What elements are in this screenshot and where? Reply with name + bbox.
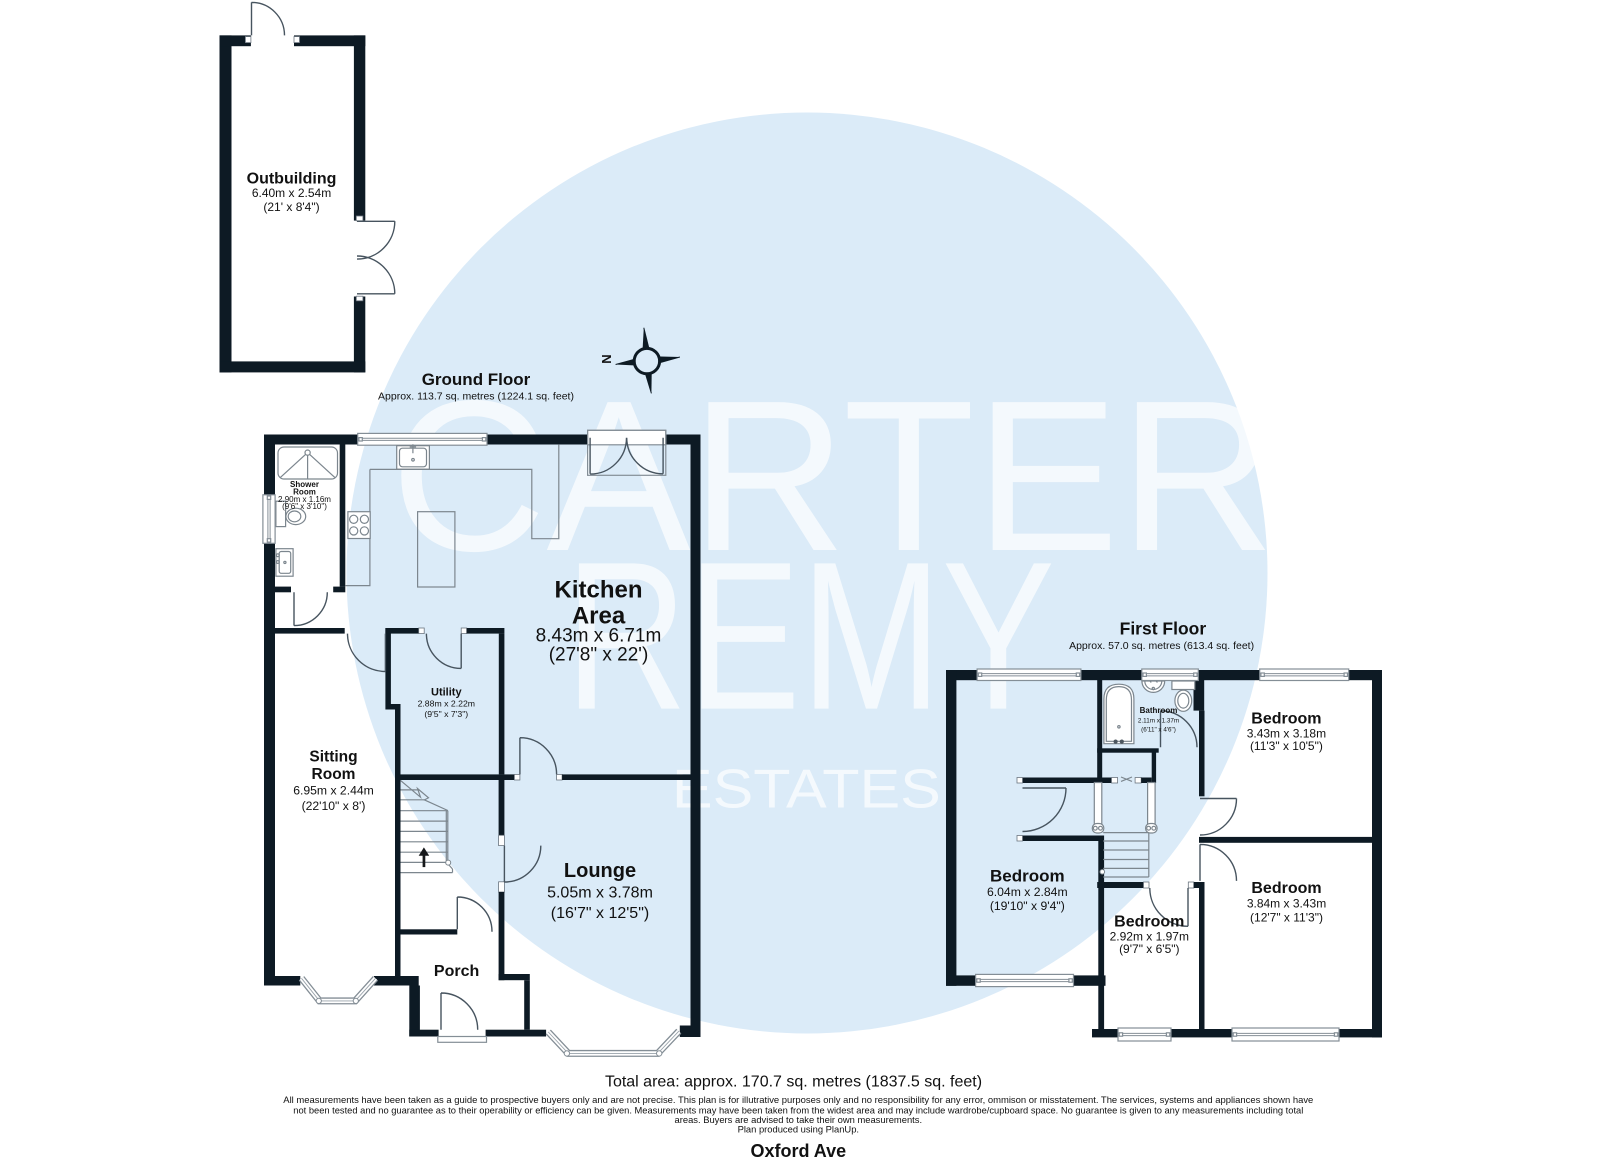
- svg-text:Lounge: Lounge: [564, 860, 636, 882]
- svg-text:Outbuilding: Outbuilding: [247, 171, 337, 188]
- svg-text:(21' x 8'4"): (21' x 8'4"): [263, 200, 319, 214]
- svg-text:Bedroom: Bedroom: [1114, 914, 1184, 931]
- svg-text:6.04m x 2.84m: 6.04m x 2.84m: [987, 885, 1068, 899]
- svg-text:Kitchen: Kitchen: [554, 577, 642, 604]
- svg-text:Bathroom: Bathroom: [1140, 706, 1178, 715]
- svg-text:(9'6" x 3'10"): (9'6" x 3'10"): [282, 502, 327, 511]
- svg-text:Oxford Ave: Oxford Ave: [750, 1141, 846, 1161]
- svg-text:(12'7" x 11'3"): (12'7" x 11'3"): [1250, 911, 1323, 925]
- svg-text:(27'8" x 22'): (27'8" x 22'): [549, 645, 649, 666]
- svg-text:All measurements have been tak: All measurements have been taken as a gu…: [283, 1094, 1313, 1105]
- svg-text:(6'11" x 4'6"): (6'11" x 4'6"): [1141, 727, 1176, 734]
- svg-text:Bedroom: Bedroom: [1251, 880, 1321, 897]
- svg-text:(16'7" x 12'5"): (16'7" x 12'5"): [551, 905, 649, 922]
- svg-text:3.84m x 3.43m: 3.84m x 3.43m: [1247, 897, 1326, 911]
- svg-text:(22'10" x 8'): (22'10" x 8'): [302, 799, 366, 813]
- svg-text:Bedroom: Bedroom: [1251, 711, 1321, 728]
- svg-text:(9'7" x 6'5"): (9'7" x 6'5"): [1119, 942, 1179, 956]
- svg-text:2.11m x 1.37m: 2.11m x 1.37m: [1138, 718, 1179, 725]
- svg-text:Total area: approx. 170.7 sq.: Total area: approx. 170.7 sq. metres (18…: [605, 1074, 982, 1091]
- svg-text:8.43m x 6.71m: 8.43m x 6.71m: [536, 626, 662, 647]
- svg-text:(19'10" x 9'4"): (19'10" x 9'4"): [990, 899, 1065, 913]
- svg-text:6.40m x 2.54m: 6.40m x 2.54m: [252, 186, 331, 200]
- svg-text:5.05m x 3.78m: 5.05m x 3.78m: [547, 885, 653, 902]
- svg-text:Utility: Utility: [431, 687, 462, 699]
- svg-text:6.95m x 2.44m: 6.95m x 2.44m: [293, 784, 374, 798]
- svg-text:Bedroom: Bedroom: [990, 867, 1065, 886]
- svg-text:(11'3" x 10'5"): (11'3" x 10'5"): [1250, 739, 1323, 753]
- svg-text:Approx. 57.0 sq. metres (613.4: Approx. 57.0 sq. metres (613.4 sq. feet): [1069, 640, 1254, 652]
- svg-text:(9'5" x 7'3"): (9'5" x 7'3"): [424, 709, 468, 719]
- svg-text:Ground Floor: Ground Floor: [422, 370, 531, 389]
- svg-text:N: N: [599, 354, 614, 363]
- svg-text:First Floor: First Floor: [1120, 619, 1207, 639]
- svg-text:2.88m x 2.22m: 2.88m x 2.22m: [418, 699, 475, 709]
- svg-text:Room: Room: [312, 766, 356, 783]
- svg-text:Porch: Porch: [434, 963, 479, 980]
- svg-text:Plan produced using PlanUp.: Plan produced using PlanUp.: [738, 1124, 859, 1135]
- svg-text:Sitting: Sitting: [309, 749, 357, 766]
- svg-text:ESTATES: ESTATES: [672, 757, 941, 819]
- svg-text:Approx. 113.7 sq. metres (1224: Approx. 113.7 sq. metres (1224.1 sq. fee…: [378, 391, 574, 403]
